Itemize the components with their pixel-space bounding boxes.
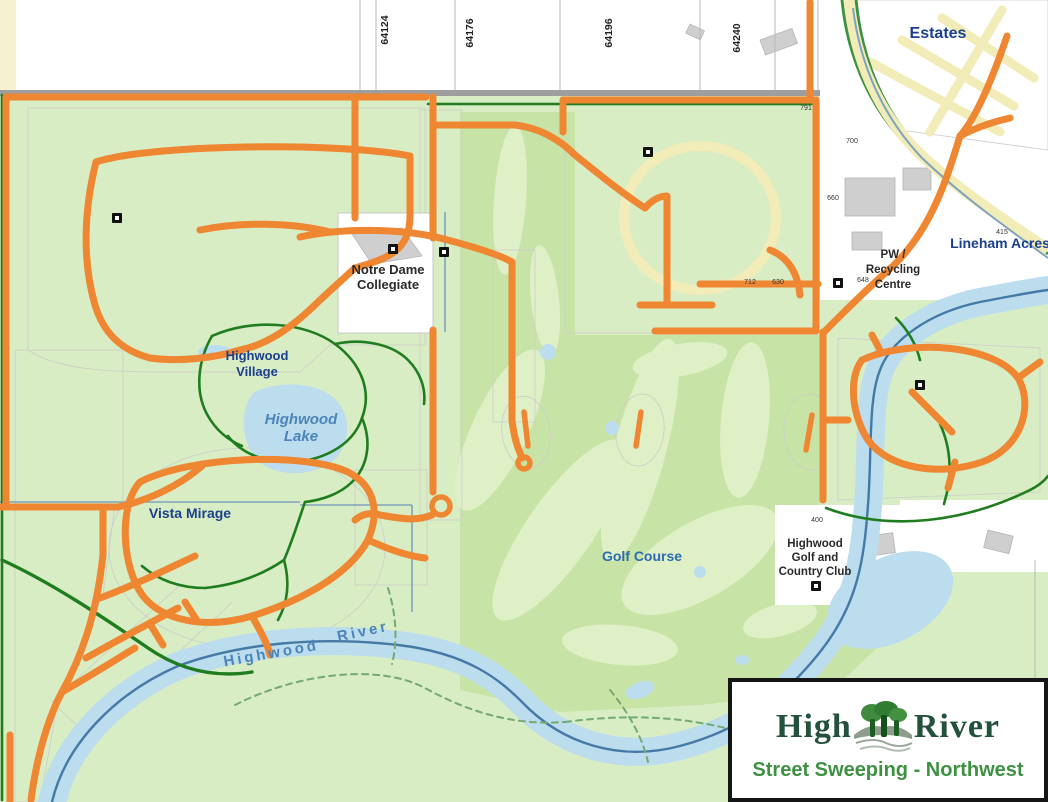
label-pw-line1: PW /	[881, 249, 907, 261]
high-river-trees-icon	[852, 701, 914, 753]
label-country-club-line3: Country Club	[779, 566, 852, 578]
parcel-number: 630	[772, 279, 784, 286]
building-icon	[833, 278, 843, 288]
building-icon	[811, 581, 821, 591]
label-highwood-village-line2: Village	[236, 364, 278, 379]
street-sweeping-map: 64124641766419664240 7917006607126306484…	[0, 0, 1048, 802]
building-icon	[643, 147, 653, 157]
label-golf-course: Golf Course	[602, 548, 682, 564]
parcel-number: 648	[857, 277, 869, 284]
label-highwood-village-line1: Highwood	[226, 348, 289, 363]
parcel-number: 700	[846, 138, 858, 145]
grid-number: 64176	[464, 18, 476, 47]
parcel-number: 791	[800, 105, 812, 112]
logo-box: High River Street Sweeping - Northwest	[728, 678, 1048, 802]
parcel-number: 660	[827, 195, 839, 202]
label-vista-mirage: Vista Mirage	[149, 505, 231, 521]
parcel-number: 400	[811, 517, 823, 524]
grid-number: 64240	[731, 23, 743, 52]
label-lineham-acres: Lineham Acres	[950, 235, 1048, 251]
label-pw-line3: Centre	[875, 279, 911, 291]
brand-word-high: High	[776, 710, 852, 744]
building-icon	[388, 244, 398, 254]
label-pw-line2: Recycling	[866, 264, 920, 276]
label-highwood-lake-line2: Lake	[284, 428, 318, 445]
label-country-club-line1: Highwood	[787, 538, 843, 550]
label-country-club-line2: Golf and	[792, 552, 839, 564]
brand-row: High River	[776, 701, 1000, 753]
grid-number: 64196	[603, 18, 615, 47]
label-notre-dame-line1: Notre Dame	[352, 262, 425, 277]
grid-number: 64124	[379, 15, 391, 44]
map-title: Street Sweeping - Northwest	[752, 759, 1023, 782]
building-icon	[439, 247, 449, 257]
building-icon	[112, 213, 122, 223]
label-highwood-lake-line1: Highwood	[265, 411, 338, 428]
label-estates: Estates	[910, 25, 967, 42]
label-notre-dame-line2: Collegiate	[357, 277, 419, 292]
building-icon	[915, 380, 925, 390]
parcel-number: 712	[744, 279, 756, 286]
brand-word-river: River	[914, 710, 1000, 744]
